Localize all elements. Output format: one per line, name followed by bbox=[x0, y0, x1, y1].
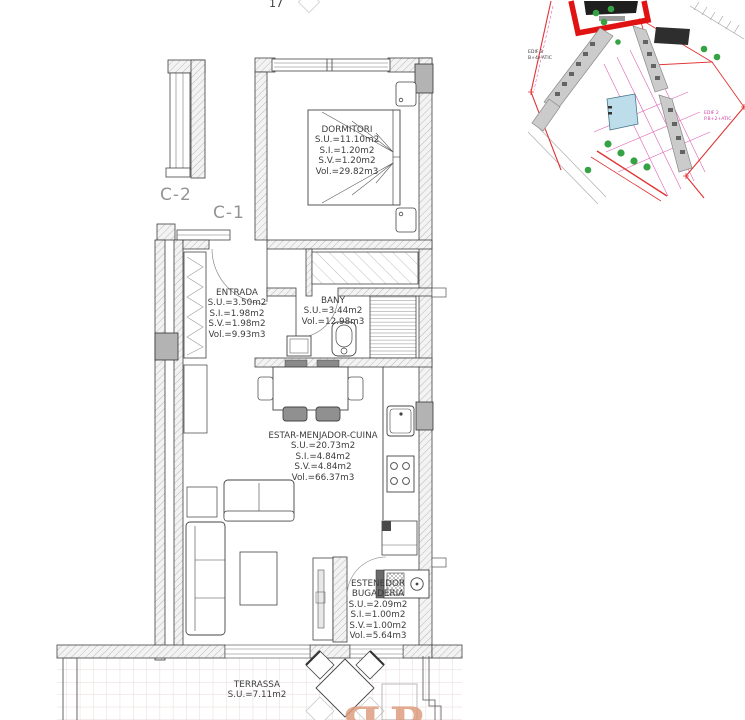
room-stat: S.U.=3.44m2 bbox=[302, 306, 365, 316]
room-label-estar: ESTAR-MENJADOR-CUINA S.U.=20.73m2 S.I.=4… bbox=[268, 431, 377, 483]
floor-plan-sheet: EDIF 3 B+4+ATIC EDIF 2 P.B+2+ATIC 17 C-2… bbox=[0, 0, 745, 720]
room-name: BUGADERIA bbox=[349, 589, 408, 599]
site-label-edif2: EDIF 2 bbox=[704, 110, 719, 116]
pillar bbox=[155, 333, 178, 360]
watermark: ЯR bbox=[341, 697, 436, 720]
room-stat: Vol.=5.64m3 bbox=[349, 631, 408, 641]
laundry-cabinet bbox=[382, 521, 417, 555]
entrada-closet bbox=[184, 252, 206, 358]
kitchen-sink-icon bbox=[387, 406, 414, 436]
room-stat: S.U.=2.09m2 bbox=[349, 600, 408, 610]
site-label-edif2-spec: P.B+2+ATIC bbox=[704, 116, 731, 122]
site-label-edif3: EDIF 3 bbox=[528, 49, 543, 55]
room-stat: S.U.=7.11m2 bbox=[228, 690, 287, 700]
room-stat: S.U.=11.10m2 bbox=[315, 135, 379, 145]
site-parking bbox=[690, 2, 744, 39]
room-stat: Vol.=66.37m3 bbox=[268, 473, 377, 483]
room-label-entrada: ENTRADA S.U.=3.50m2 S.I.=1.98m2 S.V.=1.9… bbox=[208, 288, 267, 340]
left-walls bbox=[155, 240, 183, 660]
room-label-dormitori: DORMITORI S.U.=11.10m2 S.I.=1.20m2 S.V.=… bbox=[315, 125, 379, 177]
sofa-two-seat bbox=[224, 480, 294, 521]
room-name: TERRASSA bbox=[228, 680, 287, 690]
room-stat: S.I.=1.98m2 bbox=[208, 309, 267, 319]
pillar bbox=[415, 64, 433, 93]
cooktop-icon bbox=[387, 456, 414, 492]
bedroom-window bbox=[272, 59, 390, 71]
room-stat: S.I.=4.84m2 bbox=[268, 452, 377, 462]
unit-label-c2: C-2 bbox=[160, 185, 192, 205]
room-stat: Vol.=29.82m3 bbox=[315, 167, 379, 177]
sofa-three-seat bbox=[186, 522, 225, 635]
room-name: ESTENEDOR bbox=[349, 579, 408, 589]
bath-sink-icon bbox=[287, 336, 311, 356]
wardrobe bbox=[312, 252, 418, 284]
pillar bbox=[416, 402, 433, 430]
room-stat: Vol.=9.93m3 bbox=[208, 330, 267, 340]
room-label-bany: BANY S.U.=3.44m2 Vol.=12.98m3 bbox=[302, 296, 365, 327]
room-stat: S.V.=1.98m2 bbox=[208, 319, 267, 329]
right-wall bbox=[419, 58, 432, 655]
room-stat: S.I.=1.00m2 bbox=[349, 610, 408, 620]
site-label-edif3-spec: B+4+ATIC bbox=[528, 55, 552, 61]
room-name: ESTAR-MENJADOR-CUINA bbox=[268, 431, 377, 441]
room-name: ENTRADA bbox=[208, 288, 267, 298]
cabinet bbox=[184, 365, 207, 433]
coffee-table bbox=[240, 552, 277, 605]
room-label-estenedor: ESTENEDOR BUGADERIA S.U.=2.09m2 S.I.=1.0… bbox=[349, 579, 408, 641]
room-stat: S.I.=1.20m2 bbox=[315, 146, 379, 156]
room-label-terrassa: TERRASSA S.U.=7.11m2 bbox=[228, 680, 287, 701]
room-stat: S.V.=1.00m2 bbox=[349, 621, 408, 631]
room-name: BANY bbox=[302, 296, 365, 306]
room-stat: Vol.=12.98m3 bbox=[302, 317, 365, 327]
side-table bbox=[187, 487, 217, 517]
unit-label-c1: C-1 bbox=[213, 203, 245, 223]
tv-unit bbox=[313, 558, 333, 640]
sheet-number: 17 bbox=[269, 0, 283, 10]
room-stat: S.U.=20.73m2 bbox=[268, 441, 377, 451]
terrace-slider bbox=[225, 645, 310, 658]
room-name: DORMITORI bbox=[315, 125, 379, 135]
room-stat: S.U.=3.50m2 bbox=[208, 298, 267, 308]
site-plan: EDIF 3 B+4+ATIC EDIF 2 P.B+2+ATIC bbox=[528, 1, 745, 204]
room-stat: S.V.=1.20m2 bbox=[315, 156, 379, 166]
shower bbox=[370, 296, 416, 358]
dining-table bbox=[258, 360, 363, 421]
room-stat: S.V.=4.84m2 bbox=[268, 462, 377, 472]
